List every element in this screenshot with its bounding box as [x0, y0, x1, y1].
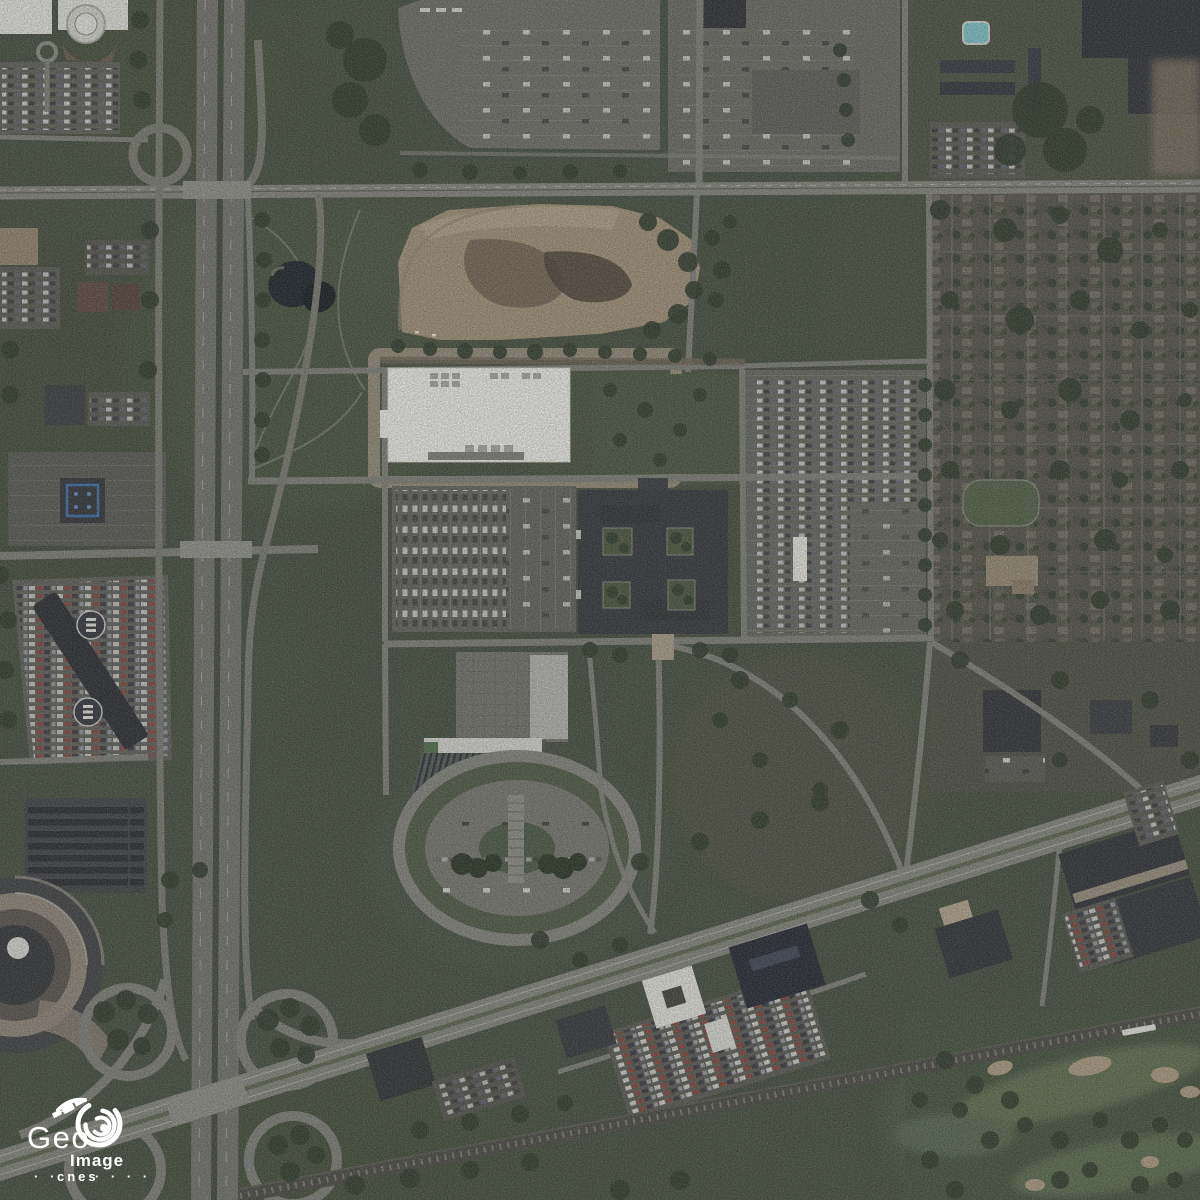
brand-cnes: cnes [57, 1169, 99, 1184]
brand-image: Image [70, 1151, 124, 1170]
cnes-dots-right: · · · · [95, 1169, 151, 1184]
satellite-scene: Geo Image · · cnes · · · · [0, 0, 1200, 1200]
brand-geo: Geo [27, 1120, 90, 1155]
grain-light [0, 0, 1200, 1200]
satellite-image: Geo Image · · cnes · · · · [0, 0, 1200, 1200]
cnes-dots-left: · · [34, 1169, 58, 1184]
